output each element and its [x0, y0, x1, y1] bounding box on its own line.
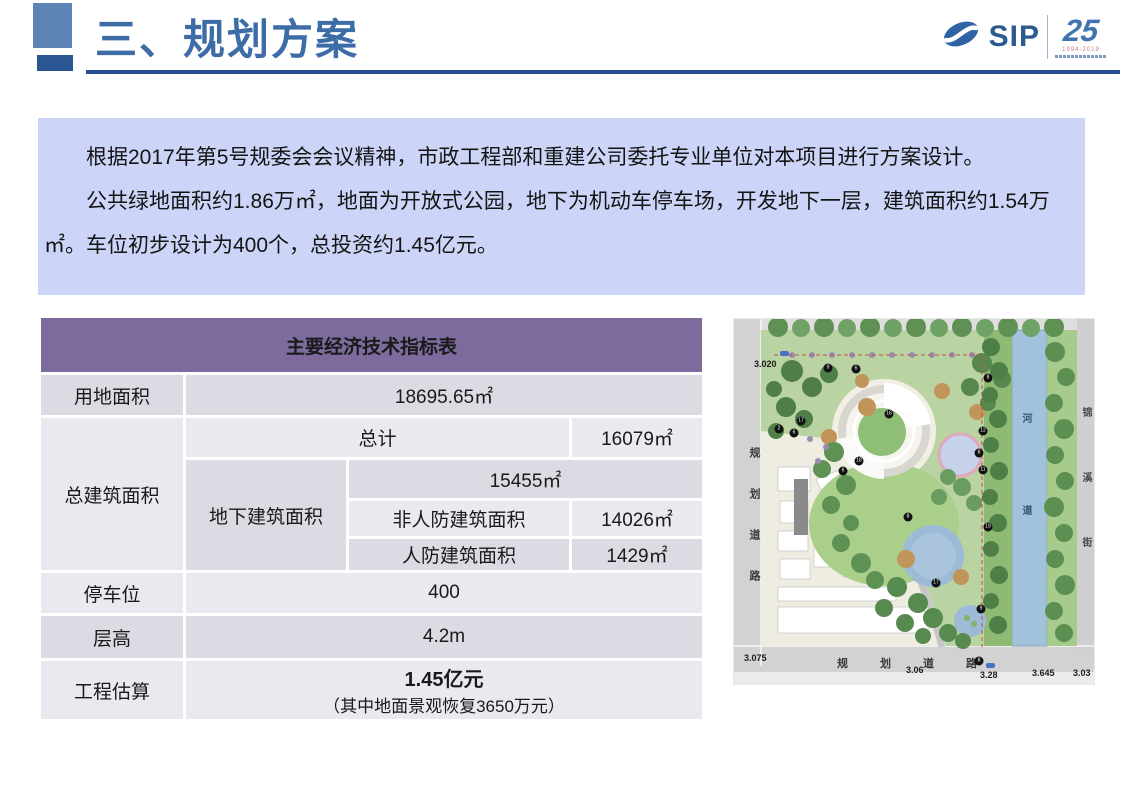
- elevation-3645: 3.645: [1032, 668, 1055, 678]
- slide: 三、规划方案 SIP 25 1994-2019 根据2017年第5号规委会会议精…: [0, 0, 1123, 794]
- plan-marker: 9: [977, 605, 986, 614]
- plan-marker: 8: [904, 513, 913, 522]
- total-value: 16079㎡: [572, 418, 702, 457]
- plan-marker: 8: [975, 657, 984, 666]
- elevation-328: 3.28: [980, 670, 998, 680]
- estimate-label: 工程估算: [41, 661, 183, 719]
- estimate-cell: 1.45亿元 （其中地面景观恢复3650万元）: [186, 661, 702, 719]
- plan-marker: 16: [885, 410, 894, 419]
- elevation-3075: 3.075: [744, 653, 767, 663]
- plan-marker: 9: [824, 364, 833, 373]
- sip-swoosh-icon: [940, 13, 982, 60]
- anniversary-number: 25: [1062, 15, 1101, 46]
- plan-marker: 2: [775, 425, 784, 434]
- non-civil-defense-value: 14026㎡: [572, 501, 702, 536]
- total-label: 总计: [186, 418, 569, 457]
- plan-marker: 11: [979, 466, 988, 475]
- intro-paragraph-2: 公共绿地面积约1.86万㎡，地面为开放式公园，地下为机动车停车场，开发地下一层，…: [38, 180, 1085, 268]
- parking-label: 停车位: [41, 573, 183, 613]
- floor-height-value: 4.2m: [186, 616, 702, 658]
- estimate-note: （其中地面景观恢复3650万元）: [190, 692, 698, 717]
- civil-defense-value: 1429㎡: [572, 539, 702, 570]
- elevation-306: 3.06: [906, 665, 924, 675]
- plan-marker: 17: [932, 579, 941, 588]
- land-area-value: 18695.65㎡: [186, 375, 702, 415]
- intro-paragraph-1: 根据2017年第5号规委会会议精神，市政工程部和重建公司委托专业单位对本项目进行…: [38, 136, 1085, 180]
- plan-road-left-label: 规划道路: [746, 447, 762, 611]
- site-plan-graphic: [734, 319, 1094, 684]
- total-floor-area-label: 总建筑面积: [41, 418, 183, 570]
- sip-logo-text: SIP: [989, 20, 1040, 54]
- car-entrance-icon: [780, 351, 789, 356]
- anniversary-mark: 25 1994-2019: [1055, 15, 1107, 58]
- plan-marker: 6: [839, 467, 848, 476]
- plan-marker: 17: [797, 417, 806, 426]
- elevation-3020: 3.020: [754, 359, 777, 369]
- underground-area-label: 地下建筑面积: [186, 460, 346, 570]
- title-underline: [86, 70, 1120, 74]
- car-entrance-icon: [986, 663, 995, 668]
- site-plan: 规划道路 规划道路 河道 锦溪街 3.020 3.075 3.06 3.28 3…: [733, 318, 1095, 685]
- indicators-table: 主要经济技术指标表 用地面积 18695.65㎡ 总建筑面积 总计 16079㎡…: [38, 315, 705, 722]
- intro-text-box: 根据2017年第5号规委会会议精神，市政工程部和重建公司委托专业单位对本项目进行…: [38, 118, 1085, 295]
- floor-height-label: 层高: [41, 616, 183, 658]
- plan-marker: 6: [852, 365, 861, 374]
- plan-street-right-label: 锦溪街: [1078, 407, 1093, 602]
- plan-marker: 18: [855, 457, 864, 466]
- plan-marker: 8: [975, 449, 984, 458]
- land-area-label: 用地面积: [41, 375, 183, 415]
- logo-divider: [1047, 15, 1048, 59]
- plan-marker: 12: [979, 427, 988, 436]
- table-title: 主要经济技术指标表: [41, 318, 702, 372]
- parking-value: 400: [186, 573, 702, 613]
- plan-marker: 19: [984, 523, 993, 532]
- title-decoration-square-dark: [37, 55, 73, 71]
- estimate-value: 1.45亿元: [190, 663, 698, 692]
- elevation-303: 3.03: [1073, 668, 1091, 678]
- plan-river-label: 河道: [1018, 413, 1033, 597]
- logo-caption-bar: [1055, 55, 1107, 58]
- plan-marker: 6: [790, 429, 799, 438]
- sip-logo: SIP 25 1994-2019: [940, 13, 1107, 60]
- civil-defense-label: 人防建筑面积: [349, 539, 569, 570]
- underground-area-value: 15455㎡: [349, 460, 702, 498]
- plan-marker: 8: [984, 374, 993, 383]
- title-decoration-square: [33, 3, 72, 48]
- page-title: 三、规划方案: [95, 6, 359, 67]
- non-civil-defense-label: 非人防建筑面积: [349, 501, 569, 536]
